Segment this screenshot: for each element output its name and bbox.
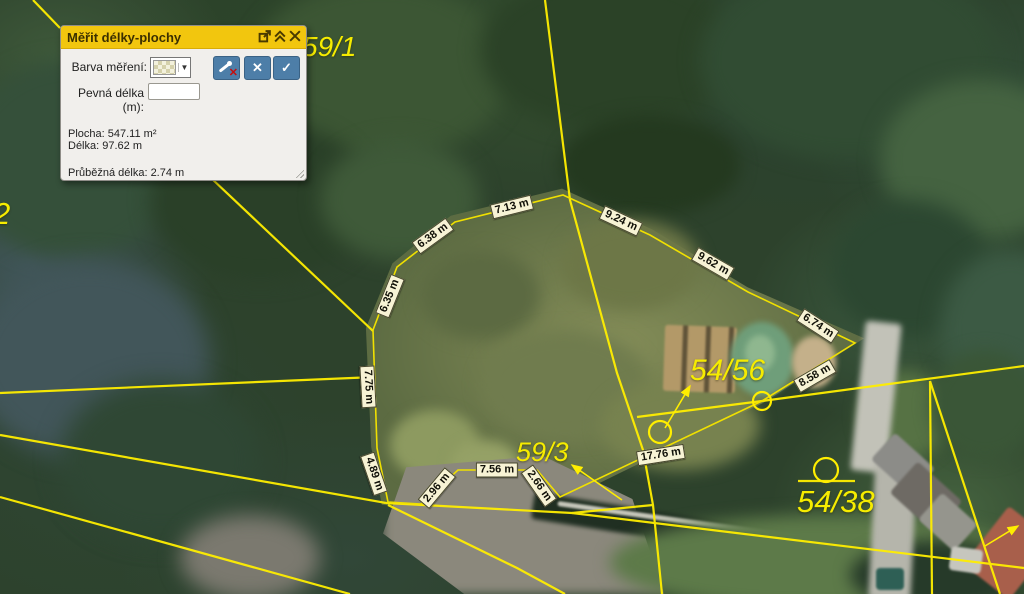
collapse-icon[interactable] (273, 29, 287, 43)
color-dropdown[interactable]: ▼ (150, 57, 191, 78)
x-icon: ✕ (245, 58, 270, 78)
panel-titlebar[interactable]: Měřit délky-plochy (61, 26, 306, 49)
parcel-number-label: 54/38 (797, 484, 875, 520)
color-label: Barva měření: (67, 60, 147, 74)
dimension-label: 7.75 m (359, 366, 376, 409)
parcel-number-label: 59/3 (516, 437, 569, 468)
panel-title: Měřit délky-plochy (67, 30, 181, 45)
check-icon: ✓ (274, 58, 299, 78)
close-icon[interactable] (288, 29, 302, 43)
red-x-icon: ✕ (229, 68, 238, 79)
fixed-length-label: Pevná délka (m): (61, 86, 144, 114)
length-result: Délka: 97.62 m (68, 140, 142, 152)
finish-measurement-button[interactable]: ✓ (273, 56, 300, 80)
popout-icon[interactable] (258, 29, 272, 43)
running-length-result: Průběžná délka: 2.74 m (68, 167, 184, 179)
parcel-number-label: 54/56 (690, 354, 765, 388)
dimension-label: 7.56 m (476, 463, 518, 478)
chevron-down-icon: ▼ (178, 63, 190, 72)
map-application-window: 6.38 m 7.13 m 9.24 m 9.62 m 6.74 m 8.58 … (0, 0, 1024, 594)
area-result: Plocha: 547.11 m² (68, 128, 156, 140)
parcel-number-label: 59/1 (302, 31, 357, 63)
vertex-marker-circle (814, 458, 838, 482)
parcel-number-label: 2 (0, 196, 10, 232)
fixed-length-input[interactable] (148, 83, 200, 100)
remove-last-point-button[interactable]: ✕ (213, 56, 240, 80)
checkered-swatch-icon (153, 60, 176, 75)
resize-handle[interactable] (294, 168, 304, 178)
measurement-polygon (373, 195, 855, 504)
cancel-measurement-button[interactable]: ✕ (244, 56, 271, 80)
measure-panel: Měřit délky-plochy Barva měření: ▼ (60, 25, 307, 181)
